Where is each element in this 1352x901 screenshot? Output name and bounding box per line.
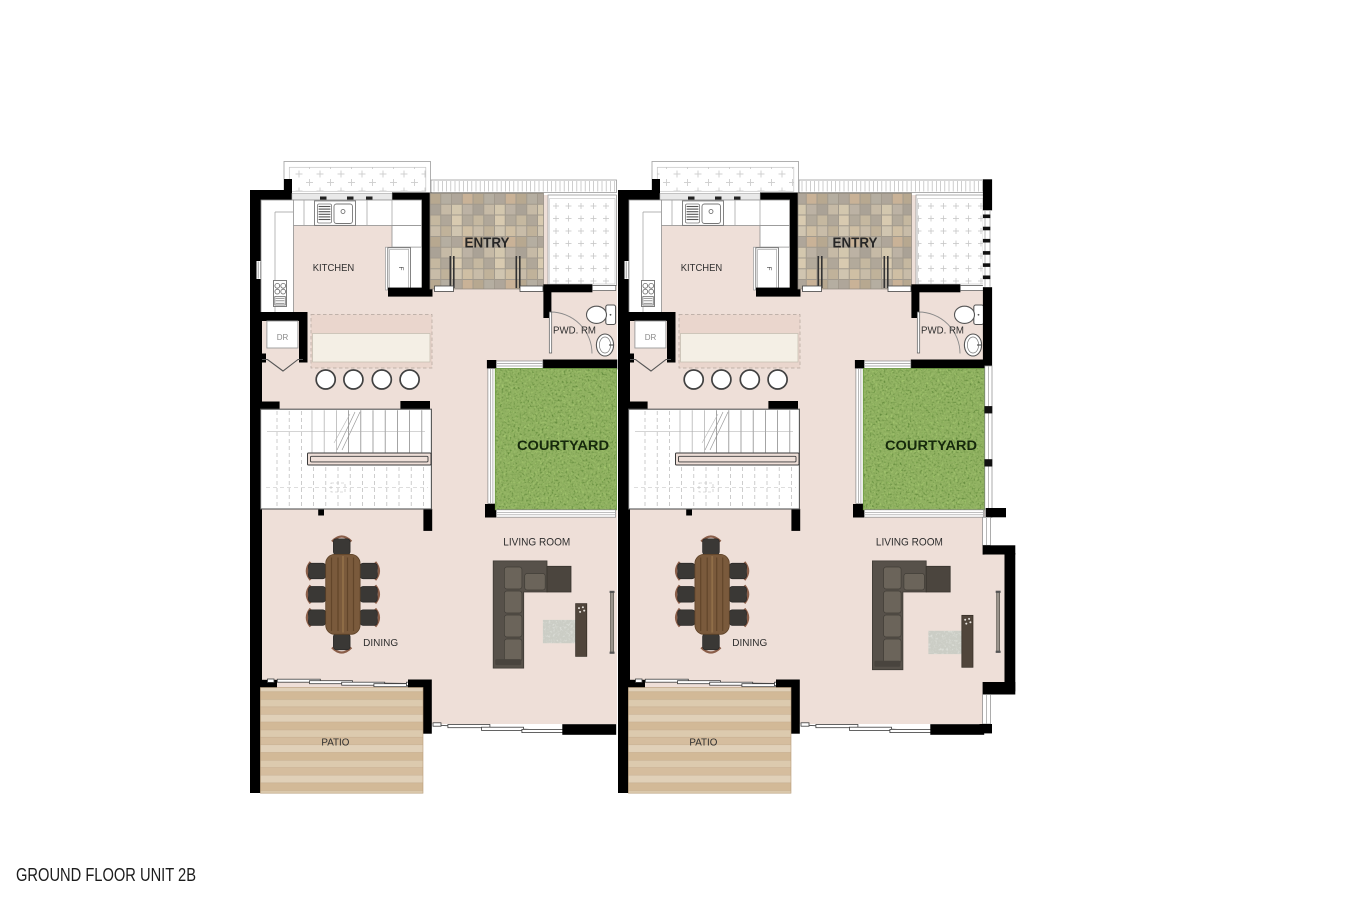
svg-text:LIVING ROOM: LIVING ROOM [876,537,943,549]
svg-text:PWD. RM: PWD. RM [553,326,596,337]
svg-text:DINING: DINING [732,637,767,649]
svg-text:PWD. RM: PWD. RM [921,326,964,337]
svg-text:DR: DR [645,333,657,342]
svg-text:F: F [397,267,404,271]
svg-text:GROUND FLOOR UNIT 2B: GROUND FLOOR UNIT 2B [16,864,196,885]
svg-text:DR: DR [277,333,289,342]
svg-text:COURTYARD: COURTYARD [517,438,609,453]
svg-text:F: F [765,267,772,271]
svg-text:PATIO: PATIO [689,737,717,749]
svg-text:PATIO: PATIO [321,737,349,749]
svg-text:KITCHEN: KITCHEN [313,263,355,274]
svg-text:KITCHEN: KITCHEN [681,263,723,274]
svg-text:ENTRY: ENTRY [465,235,510,252]
svg-text:LIVING ROOM: LIVING ROOM [503,537,570,549]
svg-text:ENTRY: ENTRY [833,235,878,252]
svg-text:COURTYARD: COURTYARD [885,438,977,453]
svg-text:DINING: DINING [363,637,398,649]
